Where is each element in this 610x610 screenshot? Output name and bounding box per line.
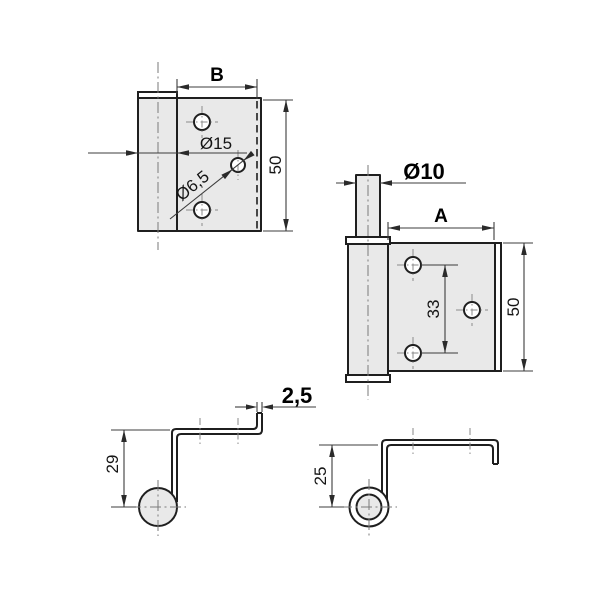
dimension-A: A: [388, 206, 494, 240]
dim-25-label: 25: [311, 467, 330, 486]
dim-a-label: A: [434, 206, 448, 227]
dim-o10-label: Ø10: [403, 159, 445, 184]
profile-outer-edge: [172, 413, 257, 496]
view-profile-right-leaf: 25: [311, 428, 498, 537]
view-profile-left-leaf: 29 2,5: [103, 383, 316, 536]
dim-b-label: B: [210, 65, 224, 86]
dim-50-right-label: 50: [504, 298, 523, 317]
dim-o15-label: Ø15: [200, 134, 232, 153]
dimension-thickness-2-5: 2,5: [235, 383, 316, 412]
profile-outer-edge: [382, 440, 498, 494]
hinge-drawing: B 50 Ø15 Ø6,5: [0, 0, 610, 610]
dim-29-label: 29: [103, 455, 122, 474]
dimension-height-50-left: 50: [263, 100, 293, 231]
profile-inner-edge: [387, 445, 493, 500]
profile-inner-edge: [177, 413, 262, 502]
dimension-height-50-right: 50: [503, 243, 533, 371]
dim-50-left-label: 50: [266, 156, 285, 175]
dim-33-label: 33: [424, 300, 443, 319]
view-front-right-leaf: Ø10 A 33 50: [336, 159, 533, 400]
dimension-B: B: [177, 65, 257, 99]
dim-2-5-label: 2,5: [282, 383, 313, 408]
view-front-left-leaf: B 50 Ø15 Ø6,5: [88, 62, 293, 250]
technical-drawing-canvas: B 50 Ø15 Ø6,5: [0, 0, 610, 610]
